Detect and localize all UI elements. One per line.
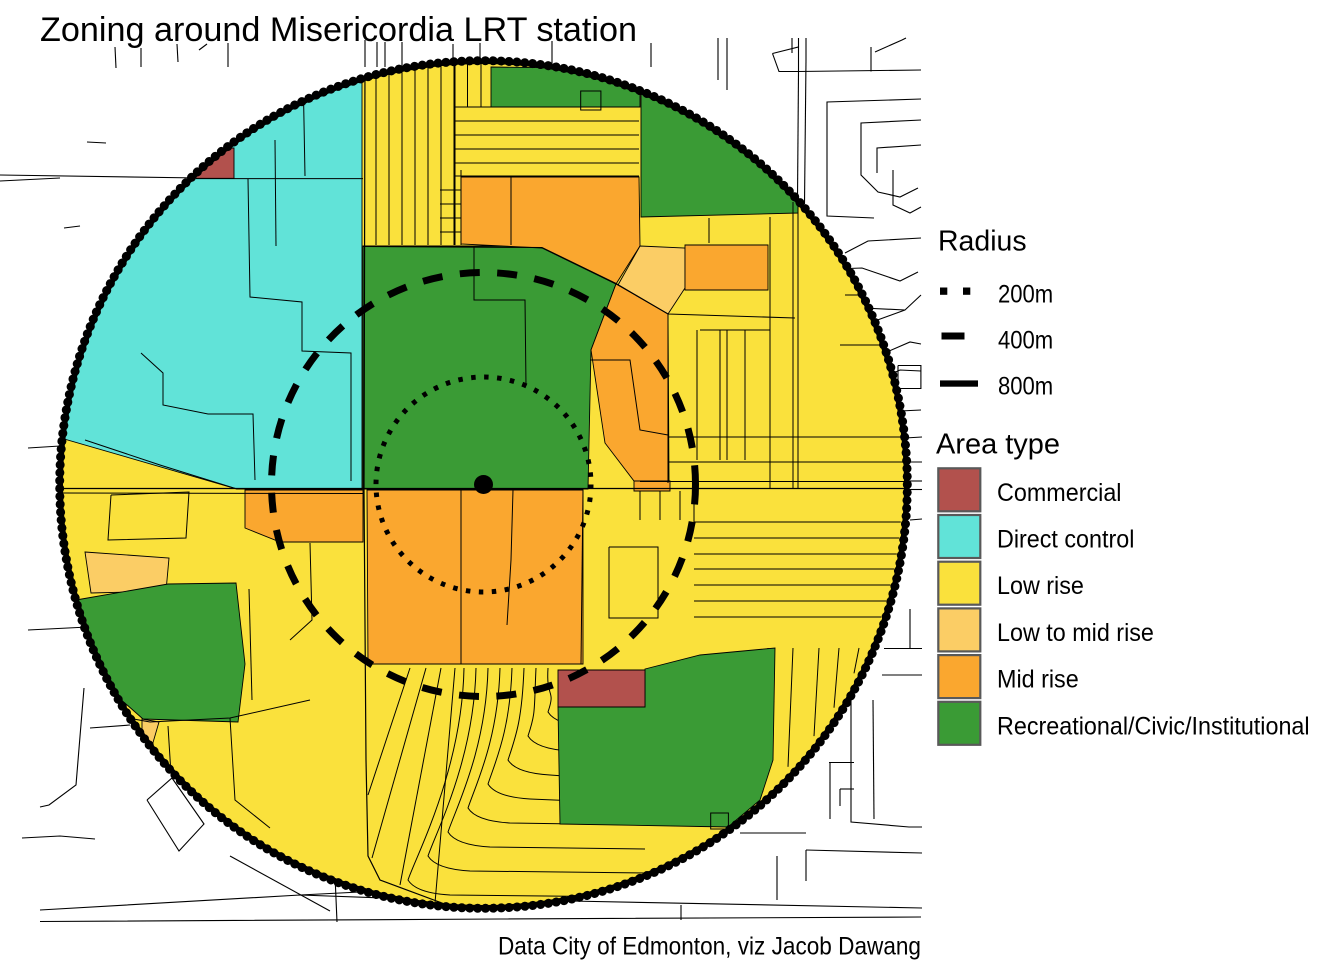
svg-text:800m: 800m bbox=[998, 374, 1053, 401]
svg-text:Mid rise: Mid rise bbox=[997, 667, 1079, 694]
svg-text:Data City of Edmonton, viz Jac: Data City of Edmonton, viz Jacob Dawang bbox=[498, 933, 921, 961]
svg-text:Zoning around Misericordia LRT: Zoning around Misericordia LRT station bbox=[40, 11, 637, 49]
svg-text:400m: 400m bbox=[998, 328, 1053, 355]
svg-text:200m: 200m bbox=[998, 281, 1053, 308]
svg-text:Recreational/Civic/Institution: Recreational/Civic/Institutional bbox=[997, 713, 1310, 740]
svg-text:Commercial: Commercial bbox=[997, 480, 1122, 507]
svg-text:Direct control: Direct control bbox=[997, 527, 1134, 554]
svg-text:Radius: Radius bbox=[938, 226, 1027, 258]
svg-text:Area type: Area type bbox=[936, 429, 1060, 461]
svg-text:Low to mid rise: Low to mid rise bbox=[997, 620, 1154, 647]
svg-text:Low rise: Low rise bbox=[997, 573, 1084, 600]
